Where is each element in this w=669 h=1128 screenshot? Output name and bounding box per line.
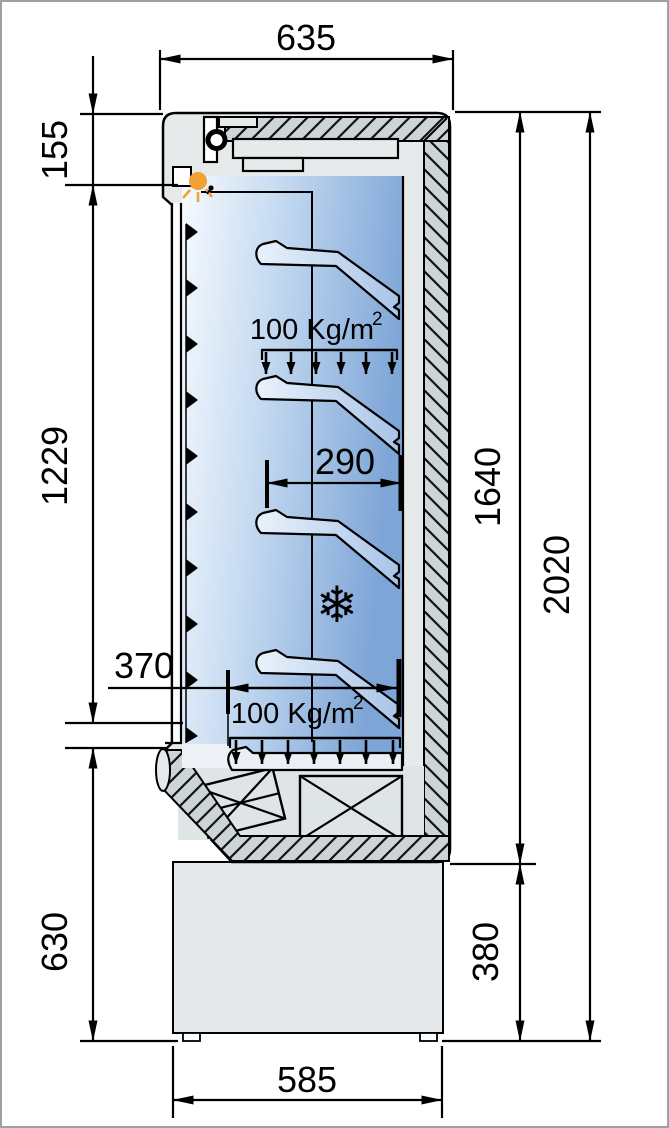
dim-label-380: 380 [465,922,506,982]
insulation-hatch-back [424,141,449,857]
dim-label-370: 370 [114,645,174,686]
ceiling-step [243,158,303,171]
dim-header-height: 155 [34,56,178,185]
page: ❄ 100 Kg/m 2 100 Kg/m 2 [0,0,669,1128]
ceiling-slab [233,139,398,158]
dim-label-2020: 2020 [536,535,577,615]
dim-door-height: 1229 [34,185,183,723]
dim-label-155: 155 [34,120,75,180]
dim-total-height: 2020 [536,112,590,1041]
dim-label-290: 290 [315,441,375,482]
hinge-top-plate [219,117,257,127]
roller-icon [208,132,225,149]
foot-left [183,1033,200,1041]
plinth [173,862,443,1033]
dim-label-630: 630 [34,912,75,972]
insulation-hatch-top [225,117,449,141]
snowflake-icon: ❄ [316,576,358,634]
shelf-load-label: 100 Kg/m [250,314,374,346]
dim-label-1640: 1640 [467,447,508,527]
dim-label-1229: 1229 [34,426,75,506]
foot-right [420,1033,437,1041]
dim-label-585: 585 [277,1059,337,1100]
front-bumper [156,749,170,791]
dim-lower-front-height: 630 [34,748,166,1041]
evaporator-symbol [300,776,402,840]
dim-top-depth: 635 [160,17,453,110]
front-sill [182,744,230,768]
bottom-load-label: 100 Kg/m [231,698,355,730]
dim-label-635: 635 [276,17,336,58]
dim-plinth-height: 380 [465,864,520,1041]
dim-base-depth: 585 [173,1046,442,1118]
shelf-load-sup: 2 [372,309,383,330]
dim-inner-height: 1640 [467,112,520,864]
bottom-load-sup: 2 [353,693,364,714]
cabinet: ❄ [156,113,450,1041]
technical-drawing: ❄ 100 Kg/m 2 100 Kg/m 2 [2,2,667,1126]
